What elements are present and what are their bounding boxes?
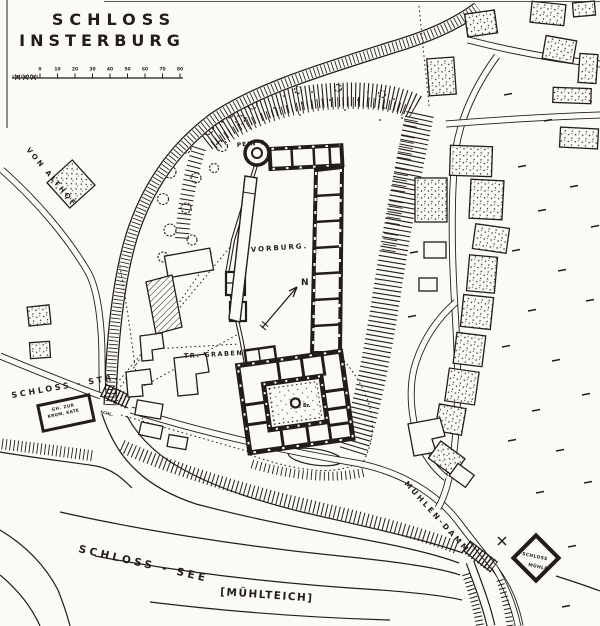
label-sluice: SCHL. bbox=[100, 409, 115, 417]
label-vorburg: VORBURG. bbox=[251, 242, 309, 254]
label-schloss-see: SCHLOSS - SEE bbox=[77, 543, 209, 585]
map-title-line1: SCHLOSS bbox=[52, 10, 176, 29]
scale-zero: 0 bbox=[38, 67, 41, 73]
label-trockener-graben: TR. GRABEN bbox=[184, 349, 244, 360]
main-castle bbox=[236, 337, 353, 452]
north-arrow bbox=[260, 287, 297, 330]
scale-tick-70: 70 bbox=[159, 67, 165, 73]
scale-tick-60: 60 bbox=[142, 67, 148, 73]
scale-bar: 0 10 20 30 40 50 60 70 80 bbox=[12, 67, 183, 81]
scale-tick-40: 40 bbox=[107, 67, 113, 73]
label-north: N bbox=[301, 278, 309, 288]
castle-complex bbox=[226, 141, 353, 453]
map-canvas: 0 10 20 30 40 50 60 70 80 bbox=[0, 0, 600, 626]
castle-well bbox=[290, 398, 300, 408]
map-title-line2: INSTERBURG bbox=[19, 31, 185, 50]
vorburg-east-range bbox=[312, 167, 342, 353]
roads bbox=[0, 40, 600, 626]
scale-tick-80: 80 bbox=[177, 67, 183, 73]
label-muehlen-damm: MÜHLEN-DAMM bbox=[403, 479, 472, 555]
label-well: Br. bbox=[303, 403, 311, 409]
mill-x-mark bbox=[498, 537, 506, 545]
scale-tick-50: 50 bbox=[124, 67, 130, 73]
scale-tick-10: 10 bbox=[54, 67, 60, 73]
scale-tick-30: 30 bbox=[89, 67, 95, 73]
meadow-marks bbox=[408, 94, 599, 608]
vorburg-north-range bbox=[269, 145, 342, 169]
label-muehlteich: [MÜHLTEICH] bbox=[220, 584, 314, 604]
scale-tick-20: 20 bbox=[72, 67, 78, 73]
mill-stream-outlet bbox=[466, 562, 510, 626]
